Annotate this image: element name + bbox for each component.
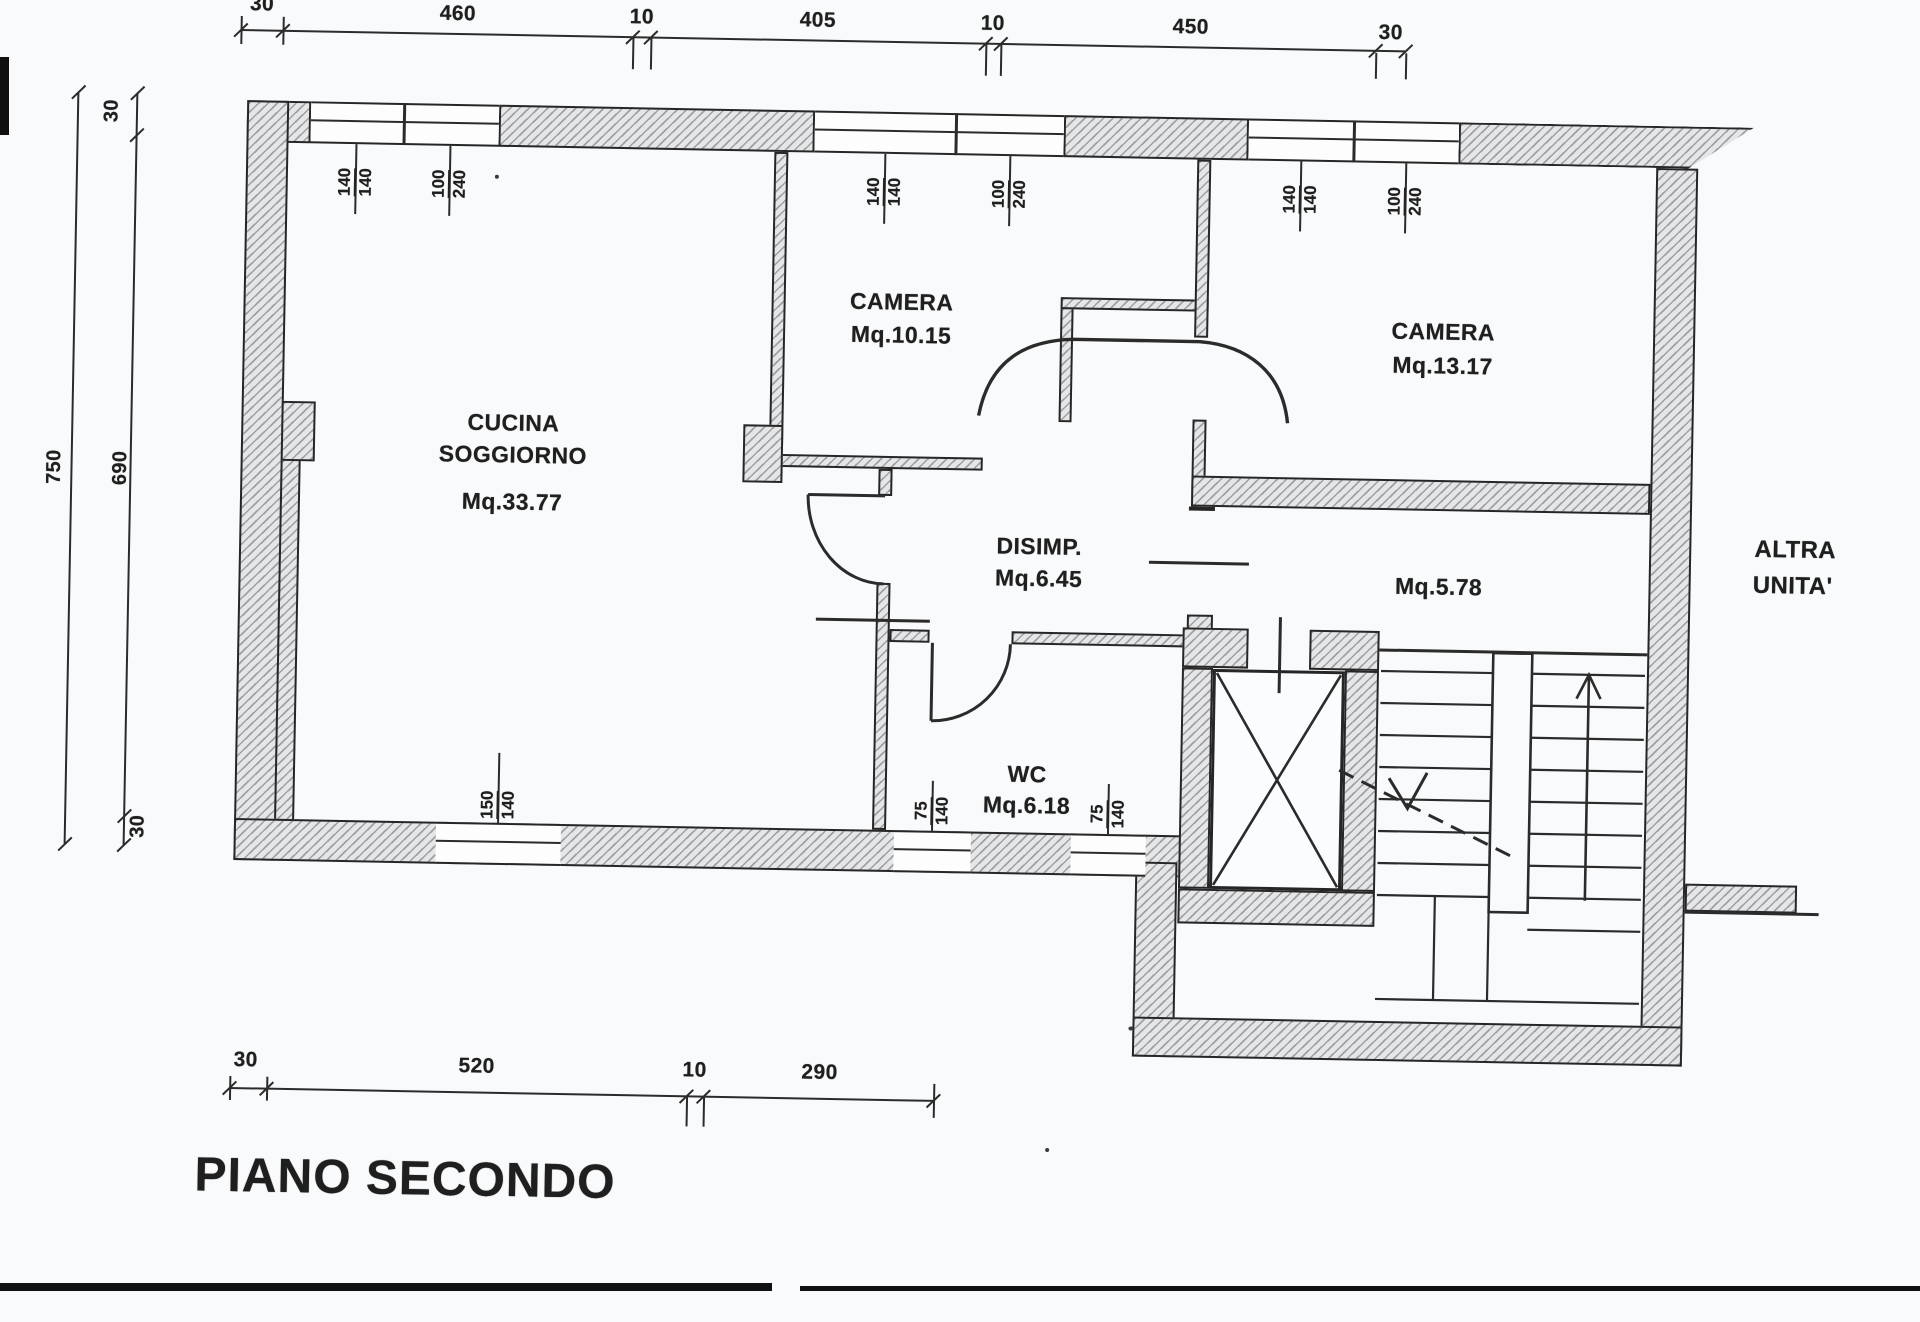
label-cucina-1: CUCINA: [467, 409, 559, 438]
stair-parapet: [1489, 653, 1533, 913]
scan-artifact-left: [0, 57, 9, 135]
section-cut-line: [1338, 770, 1516, 857]
door-cucina-arc: [807, 494, 886, 583]
label-landing-area: Mq.5.78: [1395, 573, 1483, 602]
page-title: PIANO SECONDO: [194, 1147, 616, 1210]
label-camera2: CAMERA: [1391, 318, 1495, 347]
scan-artifact-bottom-1: [0, 1283, 772, 1291]
label-cucina-area: Mq.33.77: [462, 488, 563, 517]
door-cucina-leaf: [808, 494, 885, 495]
label-camera2-area: Mq.13.17: [1392, 352, 1493, 381]
label-cucina-2: SOGGIORNO: [439, 440, 587, 470]
label-altra-1: ALTRA: [1754, 536, 1836, 565]
door-wc-arc: [931, 643, 1010, 722]
arch-opening: [979, 338, 1289, 424]
label-wc-area: Mq.6.18: [983, 791, 1071, 820]
label-disimp-area: Mq.6.45: [995, 564, 1083, 593]
scan-artifact-bottom-2: [800, 1286, 1920, 1291]
plan-linework: [0, 0, 1920, 1322]
floor-plan: 30 460 10 405 10 450 30 750 30 690 30 30…: [0, 0, 1920, 1322]
door-wc-leaf: [931, 643, 932, 721]
label-camera1-area: Mq.10.15: [851, 321, 952, 350]
label-wc: WC: [1007, 761, 1047, 789]
elevator-x-2: [1213, 673, 1341, 887]
label-camera1: CAMERA: [850, 288, 954, 317]
label-disimp: DISIMP.: [996, 532, 1082, 561]
label-altra-2: UNITA': [1753, 572, 1833, 601]
